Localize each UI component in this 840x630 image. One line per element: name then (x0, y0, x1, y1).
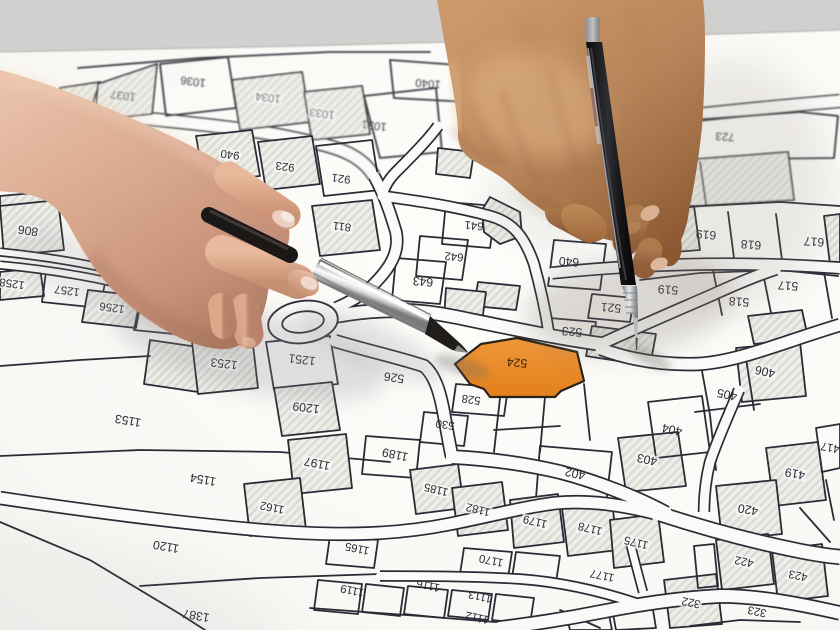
svg-text:921: 921 (331, 171, 351, 185)
svg-text:642: 642 (444, 249, 464, 263)
svg-text:641: 641 (464, 218, 484, 232)
svg-text:1040: 1040 (415, 76, 441, 90)
svg-text:524: 524 (506, 355, 528, 371)
svg-text:923: 923 (275, 159, 295, 173)
svg-text:940: 940 (220, 147, 240, 161)
svg-text:643: 643 (412, 274, 434, 290)
svg-text:811: 811 (332, 219, 351, 233)
